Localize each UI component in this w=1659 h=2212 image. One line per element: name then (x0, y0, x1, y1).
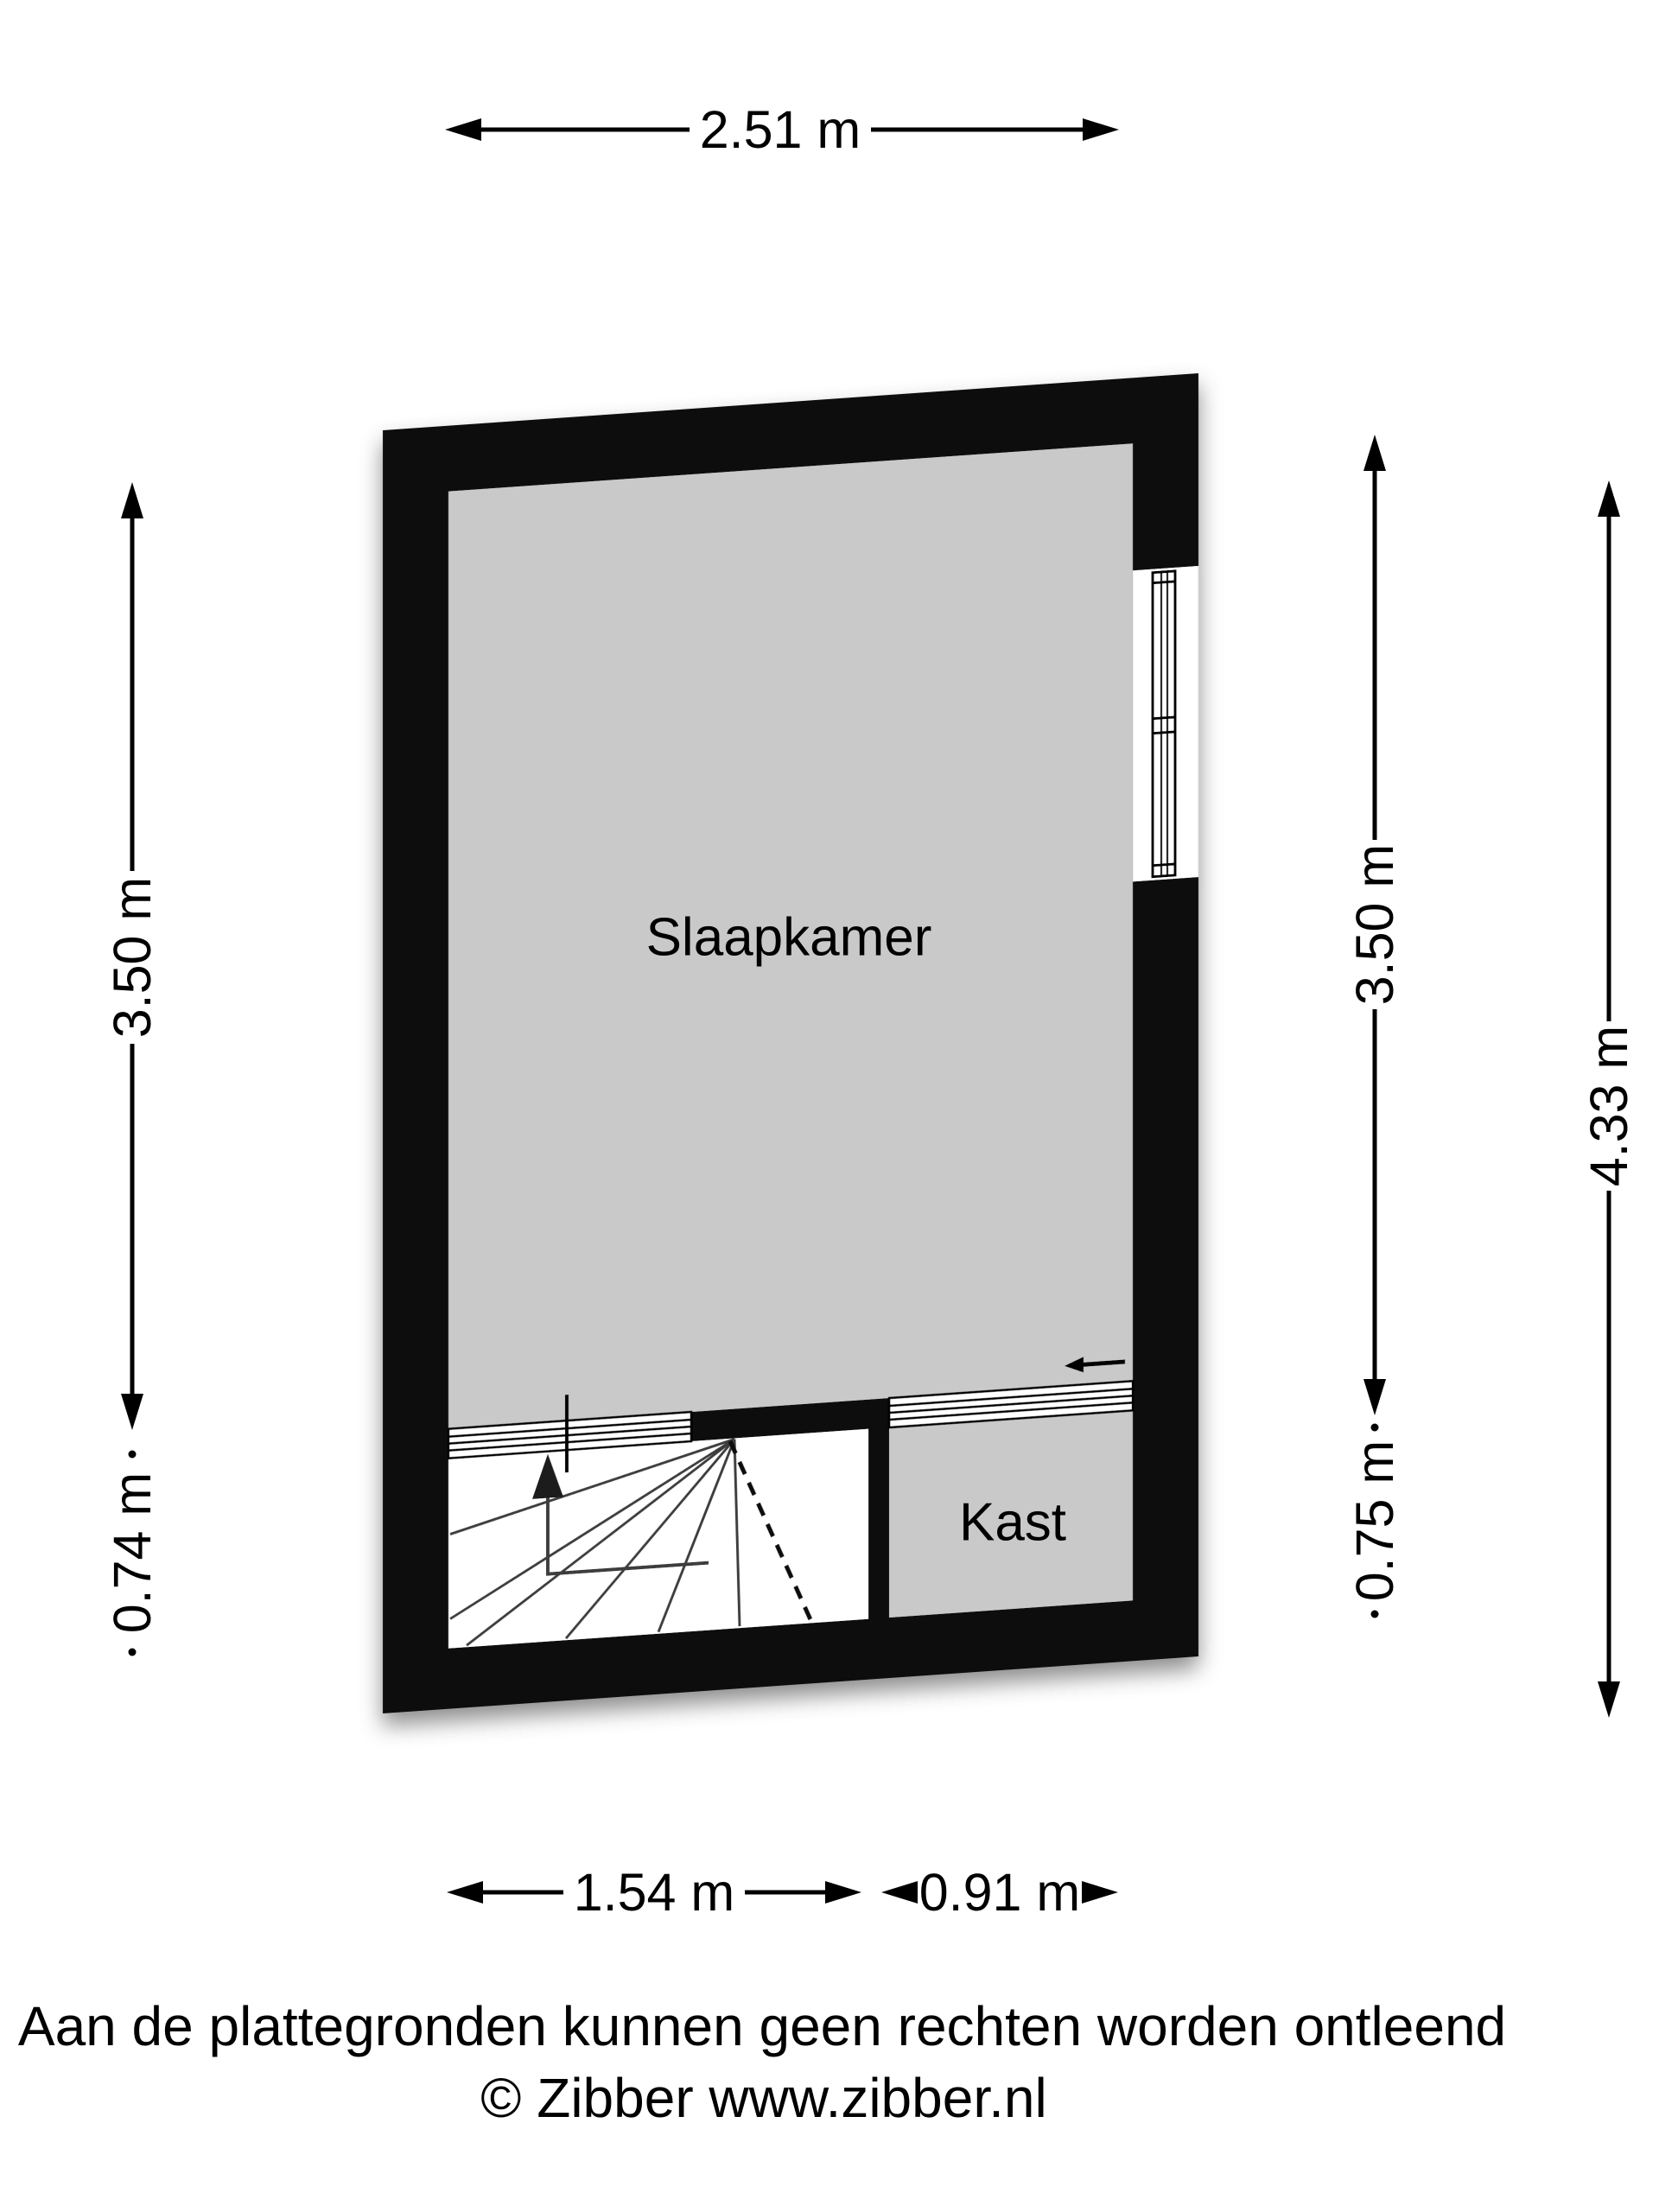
dimension-right-closet-depth-label: 0.75 m (1345, 1440, 1404, 1602)
dimension-left-room-height-label: 3.50 m (103, 877, 162, 1039)
kast-label: Kast (959, 1493, 1066, 1553)
window-icon (1133, 566, 1198, 881)
dimension-bottom-closet-width-label: 0.91 m (919, 1863, 1081, 1922)
dim-dot-icon (1371, 1611, 1379, 1618)
slaapkamer-label: Slaapkamer (646, 908, 932, 968)
dimension-overall-height-label: 4.33 m (1580, 1026, 1638, 1187)
footer-disclaimer: Aan de plattegronden kunnen geen rechten… (18, 1995, 1506, 2057)
floorplan-plan (383, 373, 1198, 1713)
dim-dot-icon (129, 1451, 137, 1459)
dimension-right-closet-depth: 0.75 m (1345, 1424, 1404, 1618)
stairwell-floor (448, 1429, 868, 1649)
dim-dot-icon (129, 1649, 137, 1656)
dimension-left-stair-depth-label: 0.74 m (103, 1472, 162, 1634)
footer-credit: © Zibber www.zibber.nl (480, 2067, 1046, 2129)
floorplan-canvas: Slaapkamer Kast 2.51 m 3.50 m 0.74 m 3.5… (0, 0, 1659, 2212)
dim-dot-icon (1371, 1424, 1379, 1432)
dimension-top-width-label: 2.51 m (700, 100, 861, 159)
dimension-left-stair-depth: 0.74 m (103, 1451, 162, 1656)
dimension-right-room-height-label: 3.50 m (1345, 844, 1404, 1006)
dimension-bottom-stair-width-label: 1.54 m (574, 1863, 735, 1922)
